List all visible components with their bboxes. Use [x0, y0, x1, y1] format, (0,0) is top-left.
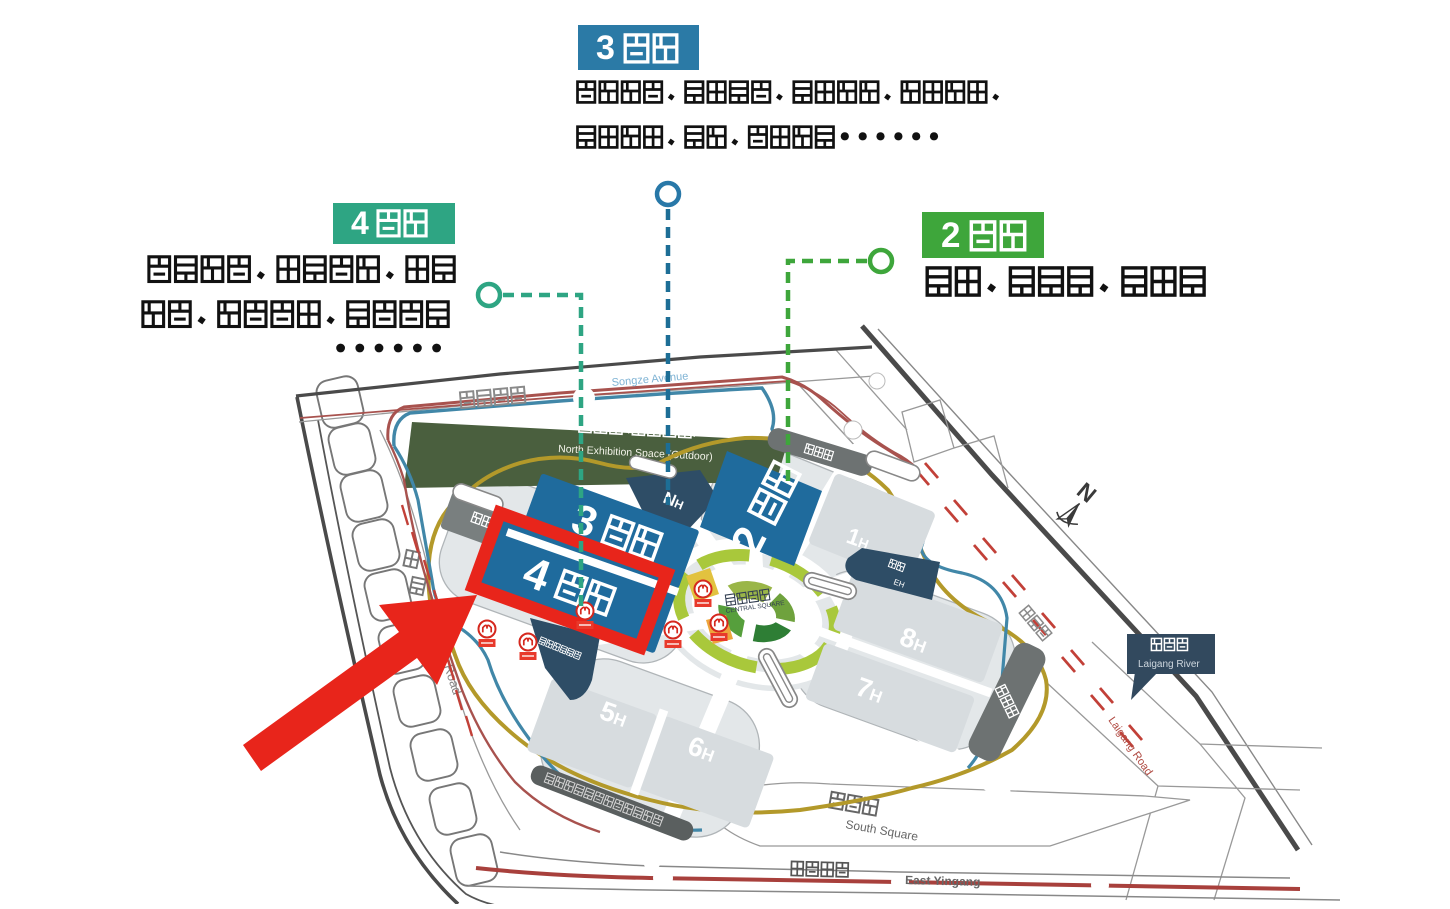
svg-text:2: 2: [941, 216, 960, 255]
svg-text:3: 3: [596, 29, 615, 67]
svg-text:4: 4: [351, 205, 369, 241]
svg-text:Laigang River: Laigang River: [1138, 659, 1200, 670]
svg-text:East Yingang: East Yingang: [905, 873, 981, 889]
